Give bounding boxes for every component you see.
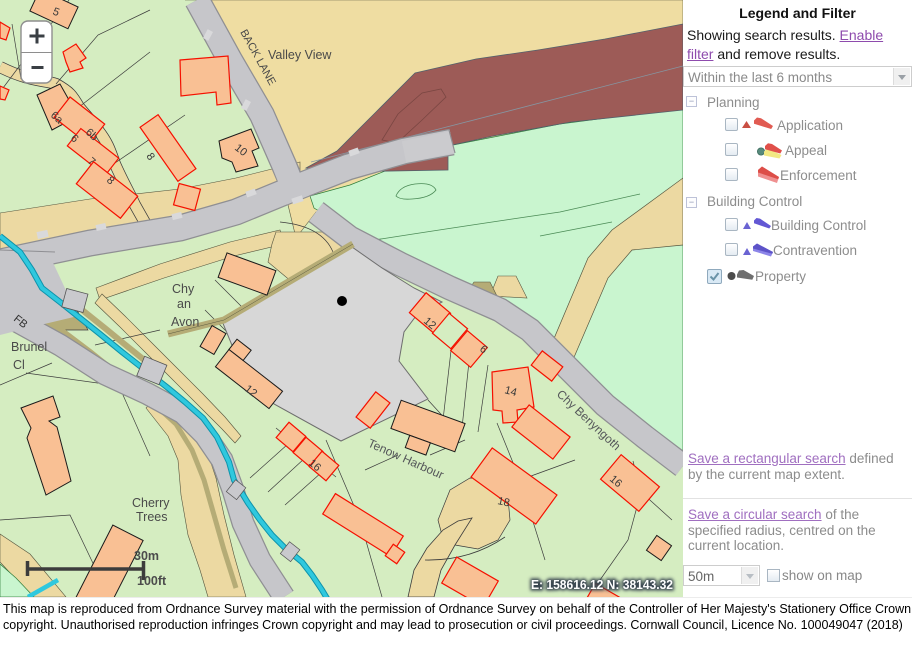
svg-text:18: 18 xyxy=(496,495,510,509)
svg-text:an: an xyxy=(177,297,191,311)
svg-text:E: 158616.12 N: 38143.32: E: 158616.12 N: 38143.32 xyxy=(531,577,673,592)
svg-text:Valley View: Valley View xyxy=(268,48,332,62)
svg-text:100ft: 100ft xyxy=(137,574,167,588)
svg-text:Cherry: Cherry xyxy=(132,496,170,510)
svg-text:Brunel: Brunel xyxy=(11,340,47,354)
svg-text:30m: 30m xyxy=(134,549,159,563)
svg-text:Avon: Avon xyxy=(171,315,199,329)
svg-text:Chy: Chy xyxy=(172,282,195,296)
svg-text:Trees: Trees xyxy=(136,510,168,524)
svg-text:Cl: Cl xyxy=(13,358,25,372)
